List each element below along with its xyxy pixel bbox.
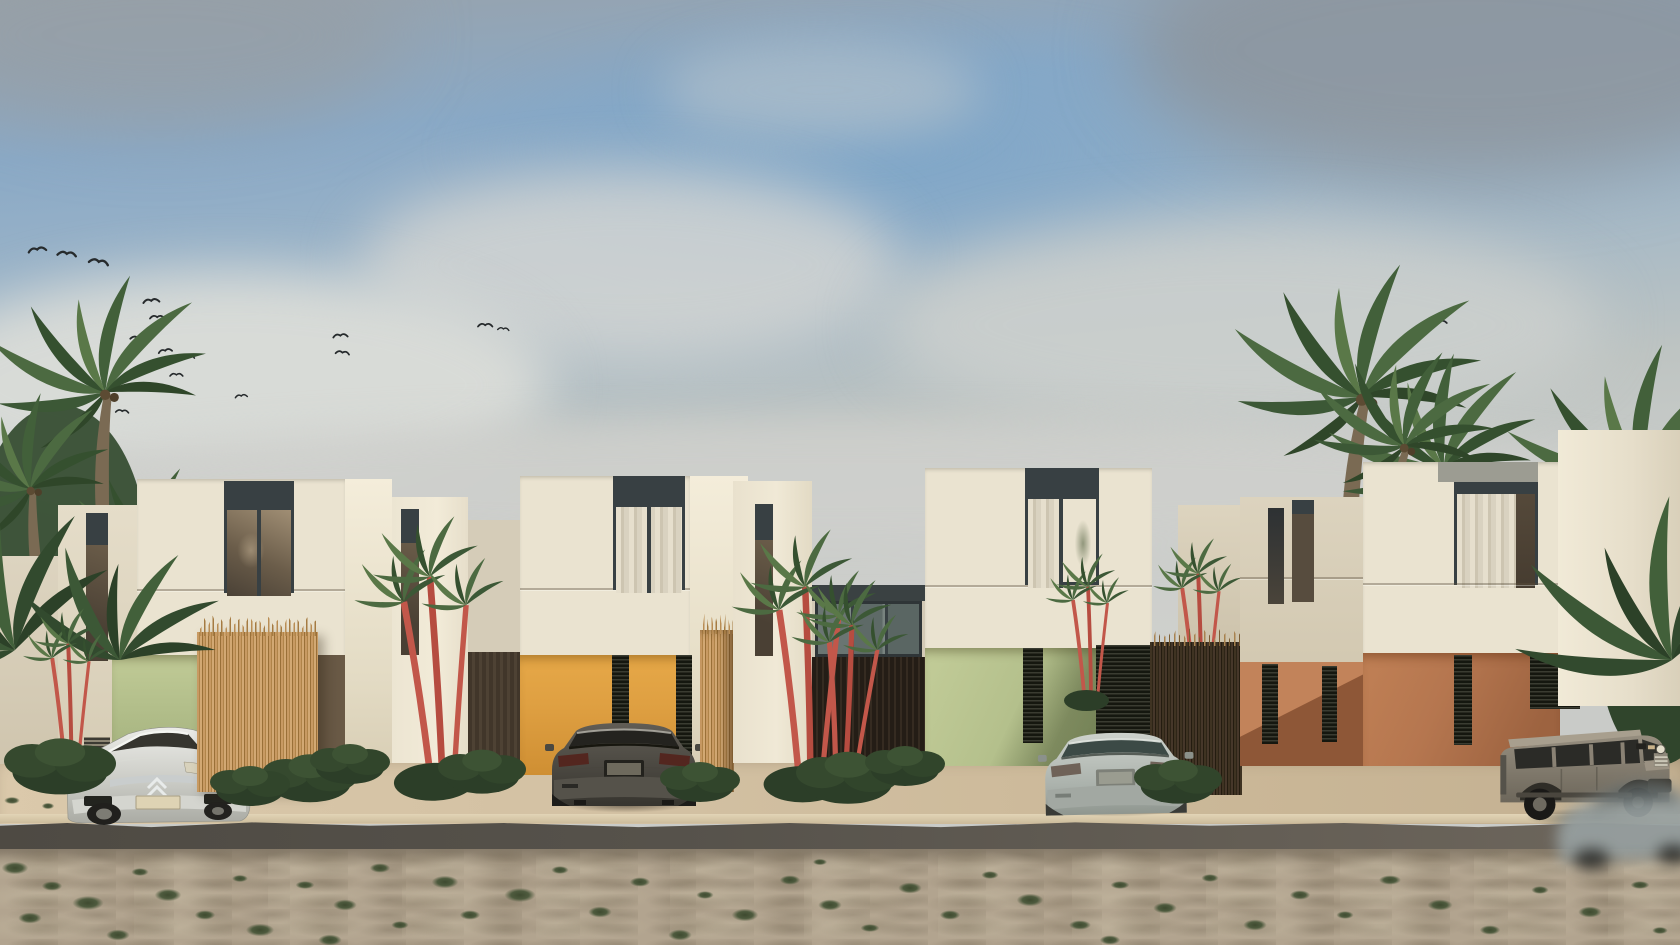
window-glass-reflection — [1059, 499, 1096, 588]
villa-1-side-facade — [345, 479, 392, 763]
window-header — [1028, 471, 1096, 499]
window-header — [616, 479, 682, 507]
bird — [28, 247, 46, 253]
bird — [116, 410, 129, 413]
villa-2-entry-recess-wall — [468, 520, 520, 655]
villa-1-slot-window — [86, 513, 108, 661]
villa-4-side-louver — [1262, 664, 1278, 744]
bird — [170, 374, 183, 376]
bird — [130, 336, 145, 341]
window-header — [755, 504, 773, 540]
window-mullion — [1059, 499, 1063, 588]
villa-4-window — [1454, 482, 1538, 585]
villa-4-rear-wall — [1178, 505, 1242, 645]
glass-mullion — [851, 604, 854, 654]
window-glass — [755, 540, 773, 656]
bird — [158, 348, 172, 353]
window-mullion — [257, 510, 261, 596]
bird — [182, 355, 195, 358]
architectural-rendering — [0, 0, 1680, 945]
bird — [336, 351, 350, 355]
woven-screen-villa-2 — [700, 630, 734, 792]
villa-2-window — [613, 476, 685, 590]
bird — [478, 324, 492, 327]
window-glass-dark — [1516, 494, 1536, 588]
window-glass — [86, 545, 108, 661]
villa-4-window-recess-band — [1438, 462, 1538, 482]
bird — [89, 258, 109, 265]
villa-3-window — [1025, 468, 1099, 585]
villa-3-louver — [1096, 645, 1152, 735]
villa-2-entry-slats — [468, 652, 520, 763]
villa-4-accent-wall-side — [1240, 662, 1363, 766]
entry-module-balcony-glass — [815, 601, 922, 657]
window-curtains — [1457, 494, 1516, 588]
window-header — [1457, 485, 1535, 494]
sand-verge — [0, 849, 1680, 945]
villa-4-floor-line — [1363, 583, 1560, 585]
window-header — [401, 509, 419, 543]
window-header — [227, 484, 291, 510]
villa-4-louver — [1454, 655, 1472, 745]
villa-4-side-slot-window — [1268, 508, 1284, 604]
woven-screen-villa-1 — [197, 632, 318, 792]
entry-module-fascia — [812, 585, 925, 601]
bird — [150, 316, 164, 319]
bird — [235, 394, 247, 397]
window-curtains — [1028, 499, 1059, 588]
window-glass — [401, 543, 419, 655]
boundary-wall-right — [1558, 430, 1680, 706]
bird — [143, 299, 159, 303]
link-tower-2-slot-window — [755, 504, 773, 656]
vehicle-passing-blurred — [1544, 765, 1680, 872]
bird — [333, 334, 348, 338]
bird — [498, 327, 509, 330]
entry-module-wood-slats — [812, 657, 925, 763]
window-header — [86, 513, 108, 545]
bird — [1432, 320, 1447, 324]
window-glass — [1028, 499, 1096, 588]
window-mullion — [647, 507, 651, 593]
bird — [57, 251, 76, 256]
villa-1-window — [224, 481, 294, 593]
vehicle-silver-sedan — [1033, 726, 1199, 819]
link-tower-1-slot-window — [401, 509, 419, 655]
glass-mullion — [885, 604, 888, 654]
villa-4-side-slot-window — [1292, 500, 1314, 602]
window-glass — [1457, 494, 1535, 588]
vehicle-charcoal-suv — [544, 718, 705, 810]
villa-4-side-louver — [1322, 666, 1337, 742]
